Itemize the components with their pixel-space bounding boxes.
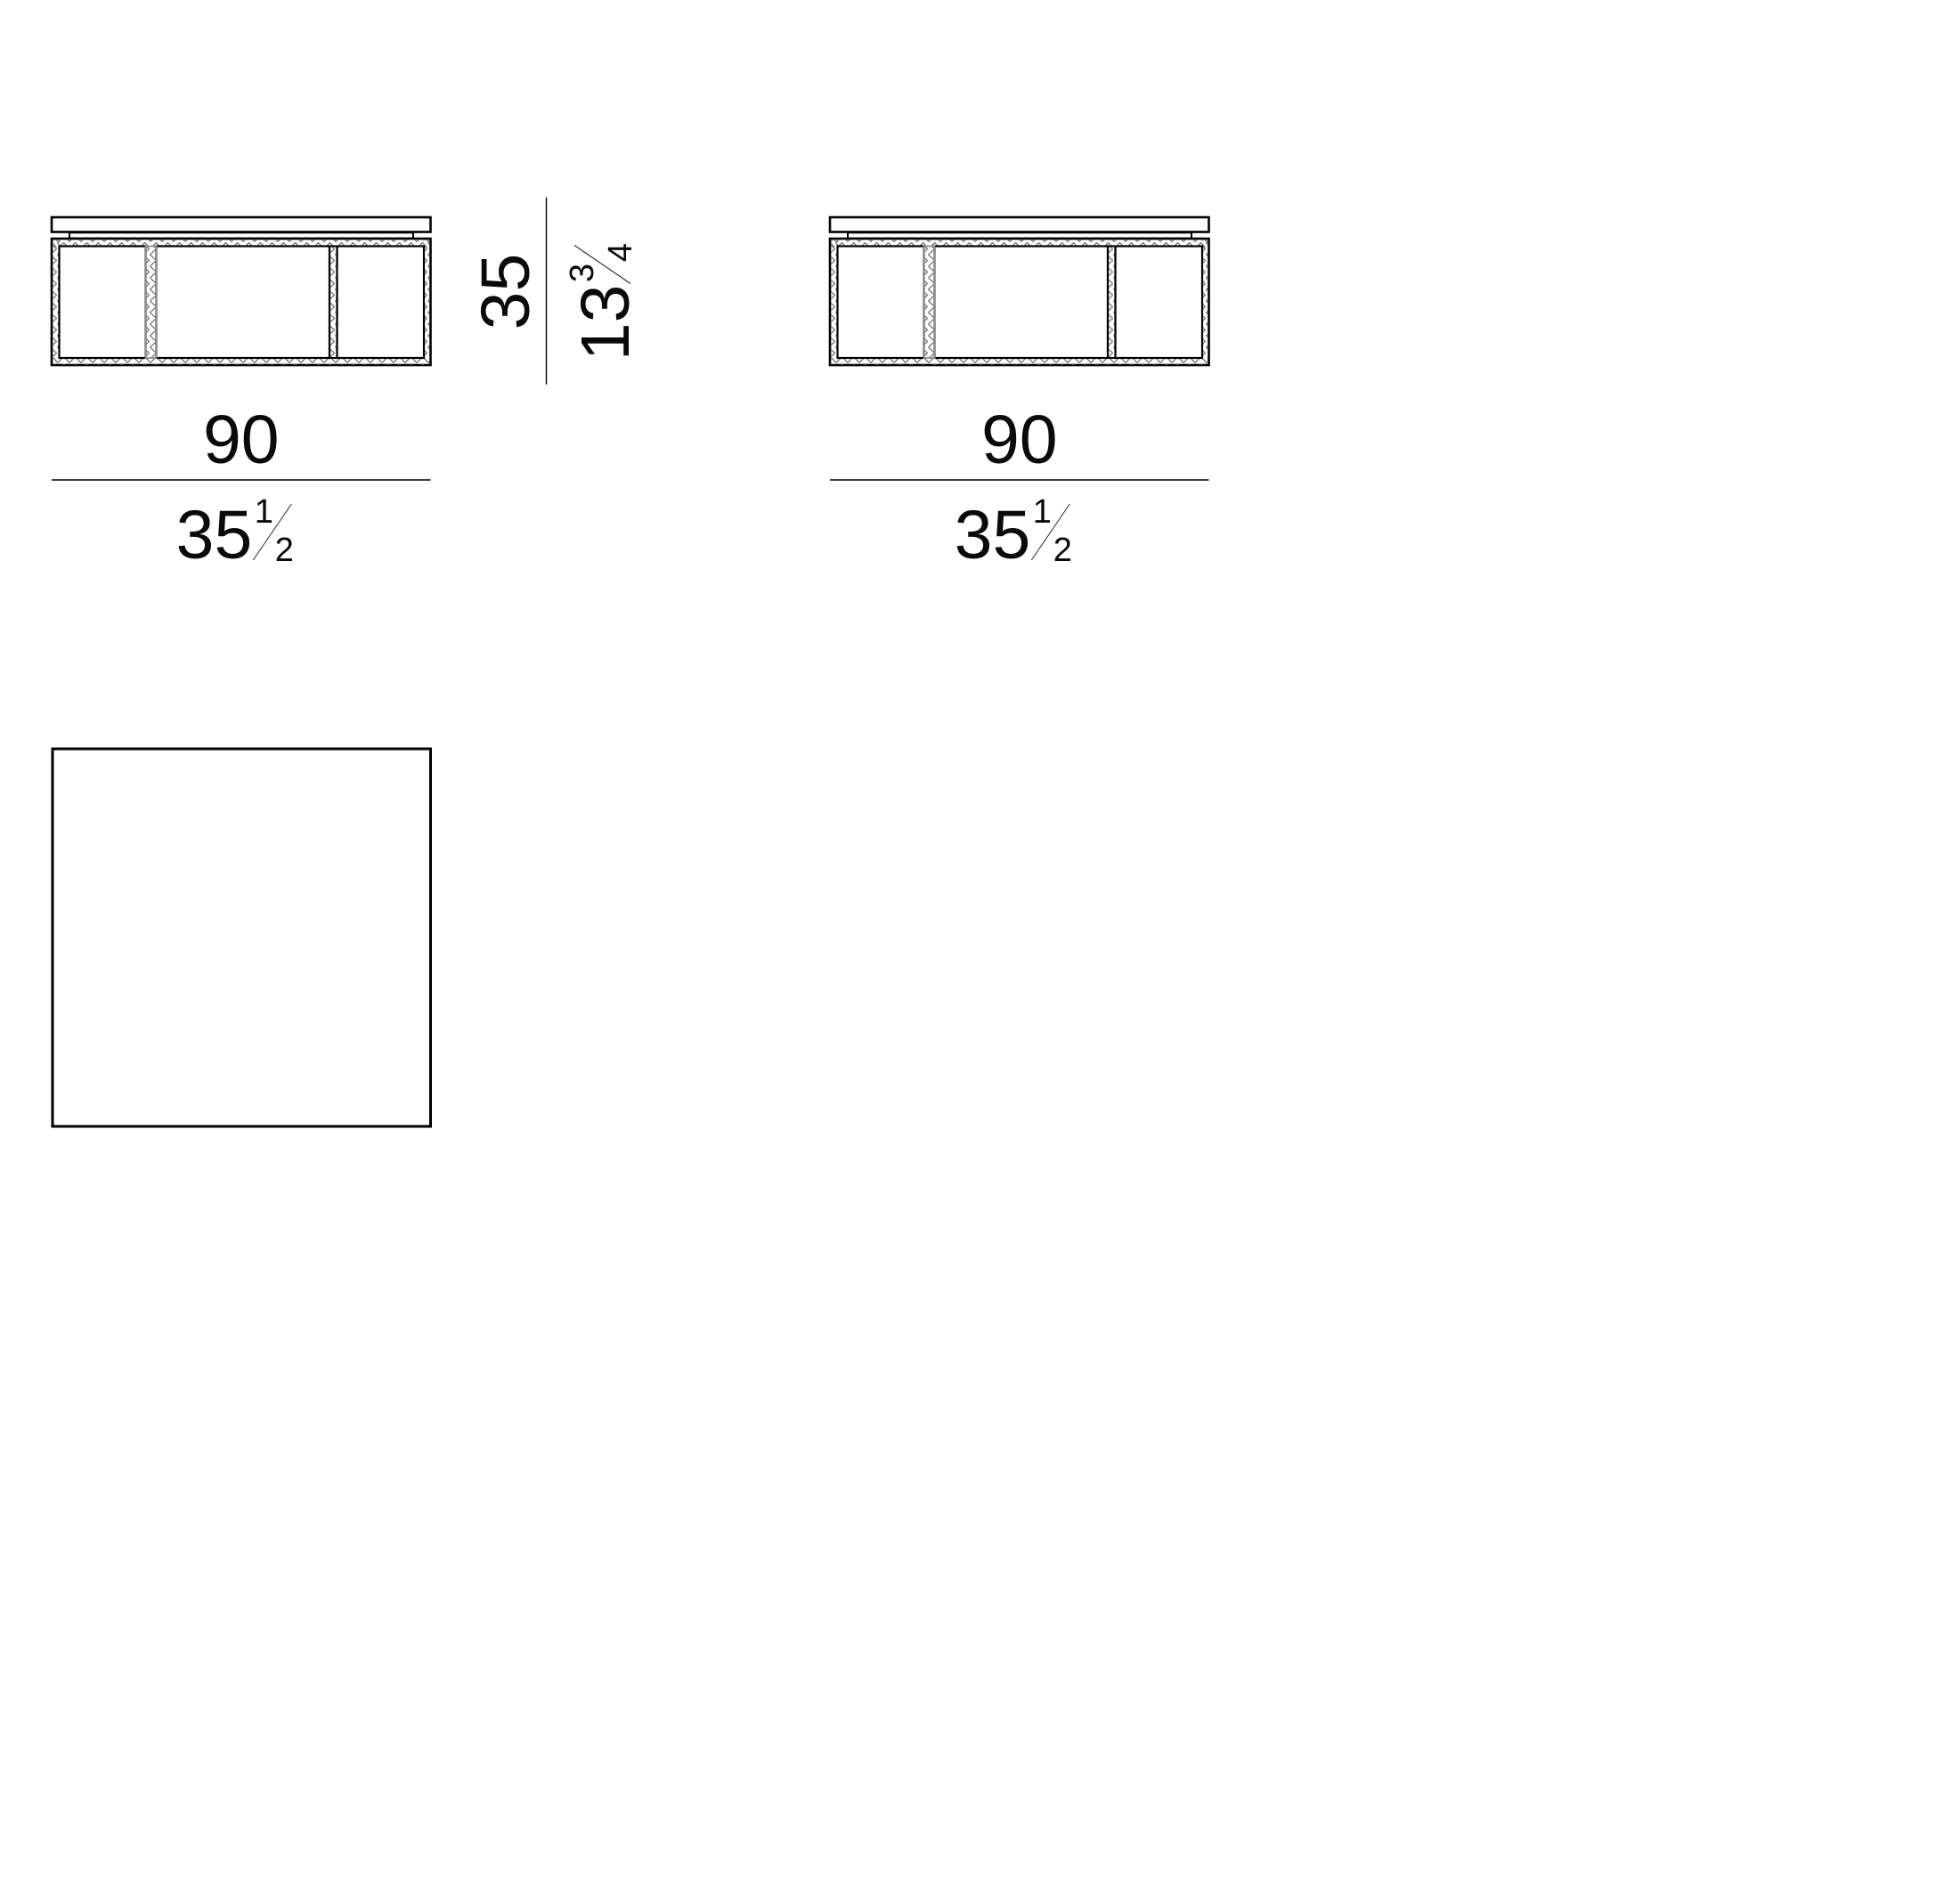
dim-right-in-denominator: 2 (1053, 532, 1072, 569)
dim-right-cm-label: 90 (981, 402, 1058, 478)
dim-height-in-numerator: 3 (564, 264, 601, 282)
dim-left-in-numerator: 1 (255, 493, 273, 531)
dim-height-in-denominator: 4 (602, 243, 639, 262)
front-elevation-right (830, 217, 1209, 365)
dimension-drawing-canvas: 90 35 1 2 90 35 1 2 35 13 3 4 (0, 0, 1960, 1885)
dim-height-cm-label: 35 (468, 254, 544, 330)
dim-left-in-denominator: 2 (275, 532, 294, 569)
dim-right-in-whole: 35 (955, 497, 1031, 573)
dim-left-in-whole: 35 (176, 497, 253, 573)
plan-view-square (53, 749, 431, 1126)
dimension-width-right: 90 35 1 2 (830, 402, 1209, 573)
dimension-height: 35 13 3 4 (468, 198, 644, 385)
dim-right-inches: 35 1 2 (955, 493, 1072, 573)
dim-right-in-numerator: 1 (1033, 493, 1052, 531)
dim-left-inches: 35 1 2 (176, 493, 294, 573)
dimension-width-left: 90 35 1 2 (52, 402, 431, 573)
dim-height-inches: 13 3 4 (564, 243, 644, 361)
dim-left-cm-label: 90 (203, 402, 280, 478)
front-elevation-left (52, 217, 431, 365)
drawing-sheet: 90 35 1 2 90 35 1 2 35 13 3 4 (0, 0, 1960, 1885)
dim-height-in-whole: 13 (567, 285, 644, 362)
